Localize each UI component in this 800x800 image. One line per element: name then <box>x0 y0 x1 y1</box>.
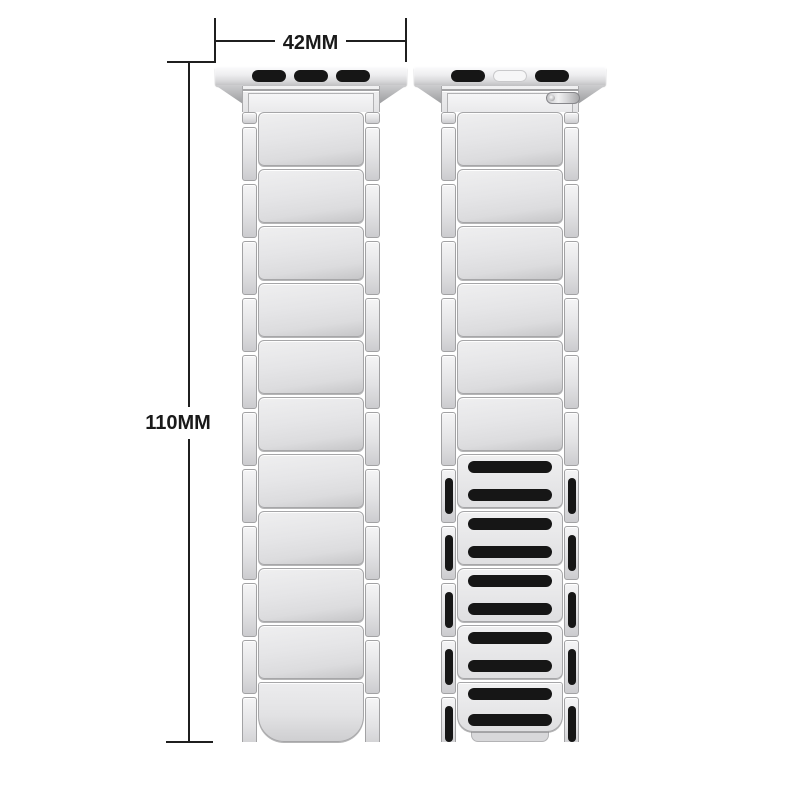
band-segment <box>457 340 563 394</box>
adapter-slots <box>215 68 407 84</box>
magnet-side-slot <box>568 535 576 571</box>
side-rail-left <box>441 112 456 742</box>
side-link <box>365 112 380 124</box>
adapter-slot-black <box>252 70 286 82</box>
band-segment <box>457 283 563 337</box>
band-segment <box>258 169 364 223</box>
height-label-text: 110MM <box>143 407 213 439</box>
magnet-slot-top <box>468 461 552 473</box>
magnet-slot-bottom <box>468 546 552 558</box>
adapter-wing-right <box>379 85 407 104</box>
side-link <box>564 640 579 694</box>
side-link <box>365 469 380 523</box>
width-label-text: 42MM <box>275 31 347 55</box>
band-segment <box>457 169 563 223</box>
side-link <box>242 298 257 352</box>
band-segment <box>258 340 364 394</box>
adapter-wing-left <box>215 85 243 104</box>
band-segment <box>258 226 364 280</box>
adapter-stem <box>242 86 380 112</box>
side-link <box>441 640 456 694</box>
magnet-segment <box>457 568 563 622</box>
side-link <box>242 112 257 124</box>
band-back-view <box>414 66 606 746</box>
watch-adapter <box>215 66 407 86</box>
side-link <box>564 112 579 124</box>
height-dimension-line <box>188 62 190 742</box>
adapter-slot-black <box>336 70 370 82</box>
side-link <box>242 184 257 238</box>
adapter-slot-white <box>493 70 527 82</box>
side-link <box>441 469 456 523</box>
adapter-slot-black <box>535 70 569 82</box>
magnet-side-slot <box>445 592 453 628</box>
side-link <box>242 412 257 466</box>
band-body <box>441 112 579 742</box>
side-link <box>365 583 380 637</box>
magnet-side-slot <box>445 535 453 571</box>
magnet-side-slot <box>568 592 576 628</box>
side-link <box>564 127 579 181</box>
magnet-side-slot <box>568 649 576 685</box>
adapter-wing-left <box>414 85 442 104</box>
center-links <box>258 112 364 742</box>
band-segment <box>457 226 563 280</box>
side-link <box>564 526 579 580</box>
magnet-slot-bottom <box>468 603 552 615</box>
band-segment <box>258 283 364 337</box>
adapter-groove <box>243 89 379 91</box>
side-link <box>365 526 380 580</box>
magnet-slot-bottom <box>468 660 552 672</box>
side-link <box>564 697 579 742</box>
magnet-segment <box>457 511 563 565</box>
band-tail-segment <box>258 682 364 742</box>
side-link <box>365 412 380 466</box>
product-dimension-diagram: 42MM 110MM <box>0 0 800 800</box>
adapter-plate <box>248 93 374 112</box>
side-link <box>441 184 456 238</box>
side-link <box>564 469 579 523</box>
side-link <box>564 412 579 466</box>
side-link <box>441 241 456 295</box>
side-link <box>365 184 380 238</box>
side-link <box>365 241 380 295</box>
side-link <box>242 526 257 580</box>
width-dimension-label: 42MM <box>215 31 406 55</box>
magnet-slot-top <box>468 688 552 700</box>
magnet-side-slot <box>445 649 453 685</box>
magnet-slot-bottom <box>468 489 552 501</box>
adapter-slots <box>414 68 606 84</box>
side-link <box>242 640 257 694</box>
side-link <box>365 697 380 742</box>
side-rail-right <box>564 112 579 742</box>
side-link <box>242 355 257 409</box>
side-link <box>242 127 257 181</box>
side-link <box>242 241 257 295</box>
side-link <box>441 355 456 409</box>
side-link <box>441 526 456 580</box>
height-tick-top <box>167 61 216 63</box>
magnet-tail-segment <box>457 682 563 732</box>
side-link <box>365 355 380 409</box>
height-dimension-label: 110MM <box>138 407 218 439</box>
band-segment <box>258 511 364 565</box>
side-link <box>365 298 380 352</box>
side-link <box>242 469 257 523</box>
magnet-slot-top <box>468 632 552 644</box>
band-segment <box>258 397 364 451</box>
side-link <box>564 355 579 409</box>
side-link <box>441 298 456 352</box>
side-link <box>441 127 456 181</box>
side-link <box>564 298 579 352</box>
magnet-segment <box>457 625 563 679</box>
adapter-stem <box>441 86 579 112</box>
side-rail-right <box>365 112 380 742</box>
side-link <box>441 697 456 742</box>
band-segment <box>457 397 563 451</box>
quick-release-pin <box>546 92 580 104</box>
band-segment <box>258 112 364 166</box>
magnet-slot-bottom <box>468 714 552 726</box>
adapter-wing-right <box>578 85 606 104</box>
magnet-slot-top <box>468 575 552 587</box>
watch-adapter <box>414 66 606 86</box>
side-link <box>441 112 456 124</box>
pin-knob <box>549 95 555 101</box>
side-link <box>564 583 579 637</box>
magnet-side-slot <box>568 478 576 514</box>
magnet-slot-top <box>468 518 552 530</box>
band-segment <box>457 112 563 166</box>
magnet-side-slot <box>445 478 453 514</box>
side-link <box>441 583 456 637</box>
side-link <box>564 241 579 295</box>
side-link <box>365 640 380 694</box>
band-segment <box>258 454 364 508</box>
adapter-slot-black <box>294 70 328 82</box>
side-link <box>365 127 380 181</box>
magnet-segment <box>457 454 563 508</box>
adapter-slot-black <box>451 70 485 82</box>
band-segment <box>258 625 364 679</box>
side-link <box>564 184 579 238</box>
band-segment <box>258 568 364 622</box>
magnet-side-slot <box>445 706 453 742</box>
adapter-groove <box>442 89 578 91</box>
band-body <box>242 112 380 742</box>
side-link <box>441 412 456 466</box>
side-link <box>242 583 257 637</box>
band-front-view <box>215 66 407 746</box>
side-rail-left <box>242 112 257 742</box>
side-link <box>242 697 257 742</box>
center-links <box>457 112 563 732</box>
magnet-side-slot <box>568 706 576 742</box>
